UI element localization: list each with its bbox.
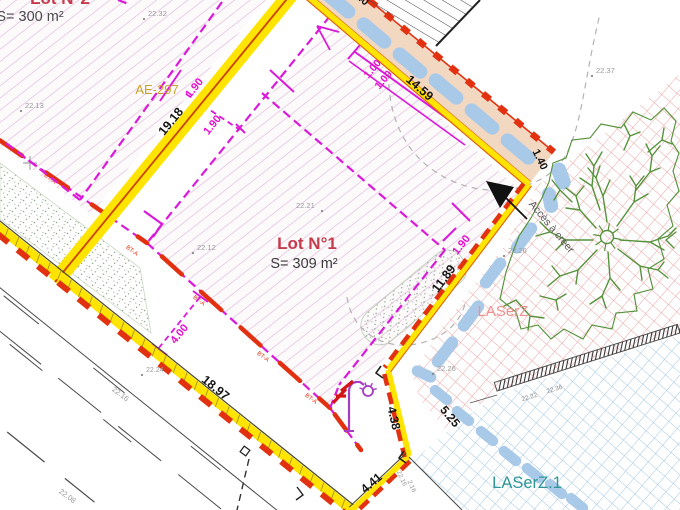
svg-text:Lot N°1: Lot N°1 — [277, 234, 337, 253]
svg-text:LASerZ.1: LASerZ.1 — [492, 474, 562, 492]
svg-text:22.21: 22.21 — [296, 201, 315, 210]
svg-text:S= 309 m²: S= 309 m² — [270, 256, 337, 272]
svg-text:22.32: 22.32 — [148, 9, 167, 18]
svg-text:22.24: 22.24 — [146, 367, 164, 374]
svg-text:22.12: 22.12 — [197, 243, 216, 252]
svg-text:AE-297: AE-297 — [135, 82, 178, 97]
svg-text:LASerZ.: LASerZ. — [477, 303, 532, 320]
svg-text:22.26: 22.26 — [508, 246, 527, 255]
svg-text:22.26: 22.26 — [437, 364, 456, 373]
svg-text:S= 300 m²: S= 300 m² — [0, 9, 64, 25]
svg-text:22.37: 22.37 — [596, 66, 615, 75]
svg-text:Lot N°2: Lot N°2 — [30, 0, 90, 8]
svg-text:22.13: 22.13 — [25, 101, 44, 110]
